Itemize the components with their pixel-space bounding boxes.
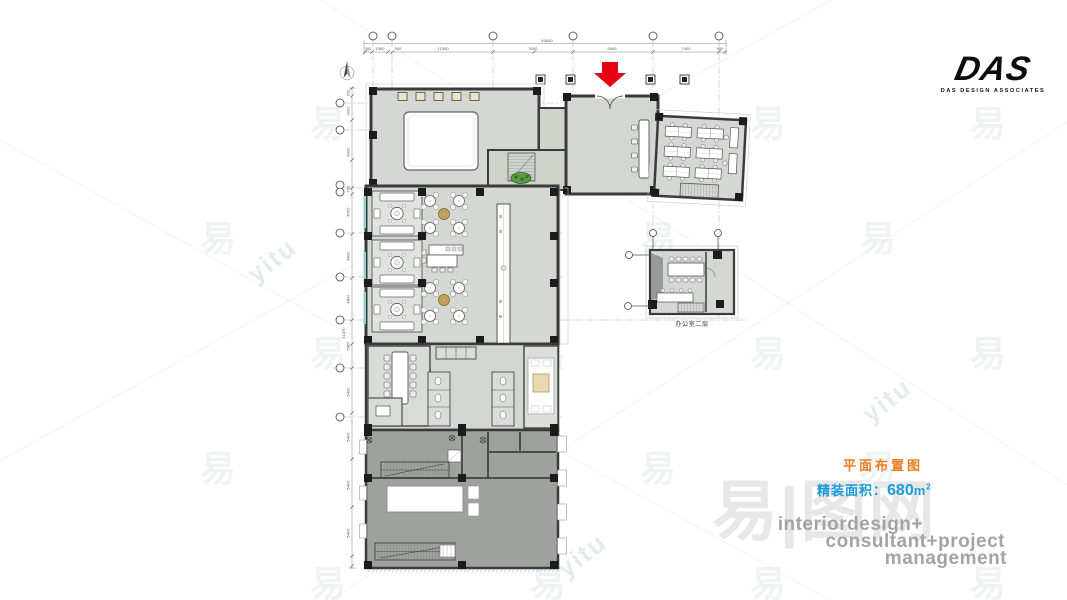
svg-text:3500: 3500 xyxy=(528,47,538,51)
staircase xyxy=(680,183,719,198)
service-area xyxy=(360,428,567,572)
dining-area xyxy=(364,186,569,346)
company-logo: DAS DAS DESIGN ASSOCIATES xyxy=(934,52,1052,94)
watermark-diagonal-text: yitu xyxy=(856,372,918,430)
grid-bubbles-left xyxy=(336,99,344,421)
private-booth xyxy=(372,287,422,332)
svg-text:300: 300 xyxy=(347,89,351,97)
area-caption: 精装面积：680m2 xyxy=(817,480,932,500)
bar-counter xyxy=(497,204,510,346)
svg-text:40000: 40000 xyxy=(541,39,553,43)
svg-text:9000: 9000 xyxy=(607,47,617,51)
svg-text:500: 500 xyxy=(395,47,403,51)
dimension-labels-left: 300 3000 8000 700 4700 4600 4800 5400 54… xyxy=(342,89,351,538)
watermark-char: 易 xyxy=(200,440,236,492)
svg-text:5400: 5400 xyxy=(347,387,351,397)
reception-table xyxy=(639,120,649,178)
area-unit-sup: 2 xyxy=(926,483,931,492)
svg-text:5400: 5400 xyxy=(347,528,351,538)
red-entrance-arrow xyxy=(594,62,626,87)
watermark-char: 易 xyxy=(200,210,236,262)
svg-text:5400: 5400 xyxy=(347,432,351,442)
private-booth xyxy=(372,240,422,285)
private-booth xyxy=(372,191,422,236)
watermark-diagonal-text: yitu xyxy=(241,232,303,290)
svg-text:4800: 4800 xyxy=(347,294,351,304)
svg-text:5400: 5400 xyxy=(347,480,351,490)
north-arrow-icon xyxy=(340,61,354,80)
cold-room xyxy=(387,486,463,512)
logo-mark: DAS xyxy=(930,52,1055,86)
conference-room xyxy=(368,346,430,426)
svg-text:8000: 8000 xyxy=(347,147,351,157)
svg-text:7400: 7400 xyxy=(681,47,691,51)
watermark-char: 易 xyxy=(970,325,1006,377)
office-washroom-block xyxy=(364,344,558,432)
svg-text:11500: 11500 xyxy=(437,47,449,51)
dimension-labels-top: 40000 300 1500 500 11500 3500 9000 7400 … xyxy=(365,39,725,51)
svg-text:300: 300 xyxy=(365,47,373,51)
svg-text:3000: 3000 xyxy=(347,106,351,116)
svg-text:1500: 1500 xyxy=(375,47,385,51)
svg-text:4700: 4700 xyxy=(347,207,351,217)
watermark-char: 易 xyxy=(860,210,896,262)
area-unit: m xyxy=(914,483,927,498)
svg-text:5400: 5400 xyxy=(347,341,351,351)
second-floor-plan: 办公室二层 xyxy=(625,230,739,329)
entrance-hall xyxy=(563,93,658,194)
area-label: 精装面积： xyxy=(817,483,887,498)
second-floor-plan-label: 办公室二层 xyxy=(675,320,708,328)
office-wing xyxy=(648,109,751,206)
footer-text-line: management xyxy=(885,548,1007,570)
watermark-char: 易 xyxy=(970,95,1006,147)
drawing-title: 平面布置图 xyxy=(843,455,923,474)
svg-text:51470: 51470 xyxy=(342,327,346,339)
presentation-slide: 易易易易易易易易易易易易易易易易易易易易yituyituyituyitu 易|图… xyxy=(0,0,1067,600)
svg-text:900: 900 xyxy=(717,47,725,51)
floor-plan-drawing: 40000 300 1500 500 11500 3500 9000 7400 … xyxy=(300,20,770,585)
svg-text:4600: 4600 xyxy=(347,251,351,261)
area-value: 680 xyxy=(887,482,914,499)
logo-subtext: DAS DESIGN ASSOCIATES xyxy=(934,88,1052,94)
svg-text:700: 700 xyxy=(347,185,351,193)
treatment-room xyxy=(524,346,558,428)
